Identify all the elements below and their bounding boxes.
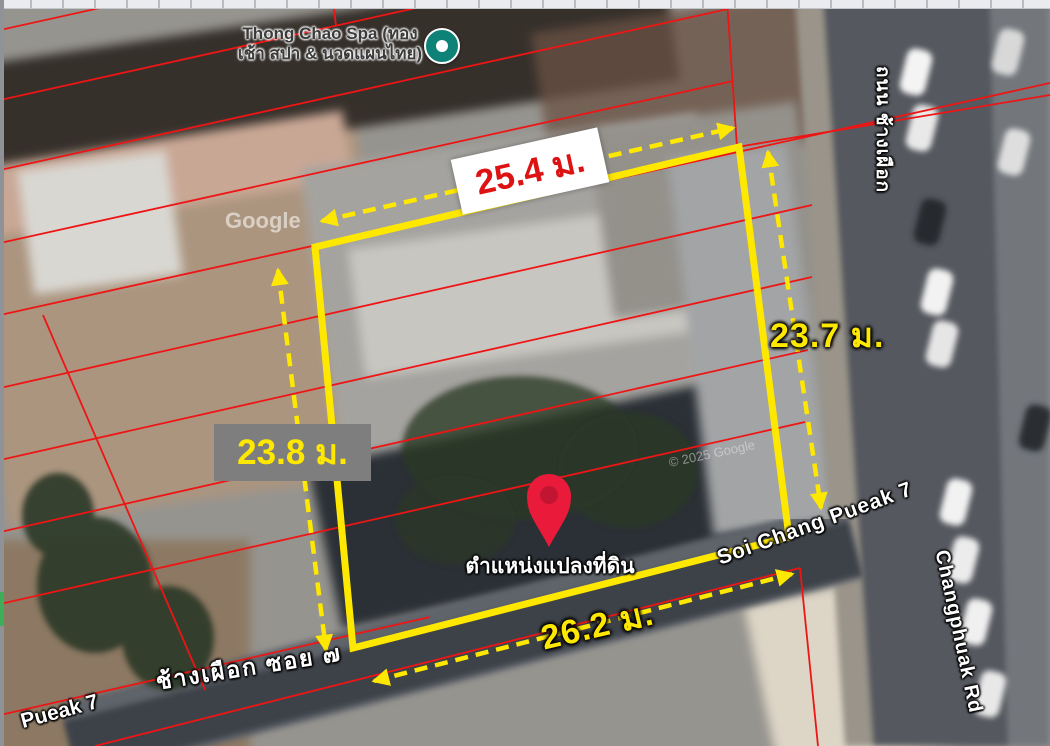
main-road-label-th: ถนน ช้างเผือก [868,66,898,193]
poi-spa-icon[interactable] [424,28,460,64]
dimension-left: 23.8 ม. [214,424,371,481]
poi-label[interactable]: Thong Chao Spa (ทอง เช้า สปา & นวดแผนไทย… [200,24,460,64]
poi-label-line2: เช้า สปา & นวดแผนไทย) [200,44,460,64]
poi-label-line1: Thong Chao Spa (ทอง [200,24,460,44]
poi-spa-icon-dot [436,40,448,52]
left-edge-strip-marker [0,592,4,626]
spreadsheet-edge-strip [0,0,1050,9]
dimension-right: 23.7 ม. [770,308,884,362]
white-roofs-left [17,150,183,295]
bright-building-bottom-right [744,568,961,746]
dimension-left-value: 23.8 ม. [237,425,348,480]
satellite-map[interactable]: Thong Chao Spa (ทอง เช้า สปา & นวดแผนไทย… [0,0,1050,746]
dimension-bottom: 26.2 ม. [535,586,659,664]
google-watermark: Google [225,208,301,234]
left-edge-strip [0,0,4,746]
pin-caption: ตำแหน่งแปลงที่ดิน [455,550,645,583]
